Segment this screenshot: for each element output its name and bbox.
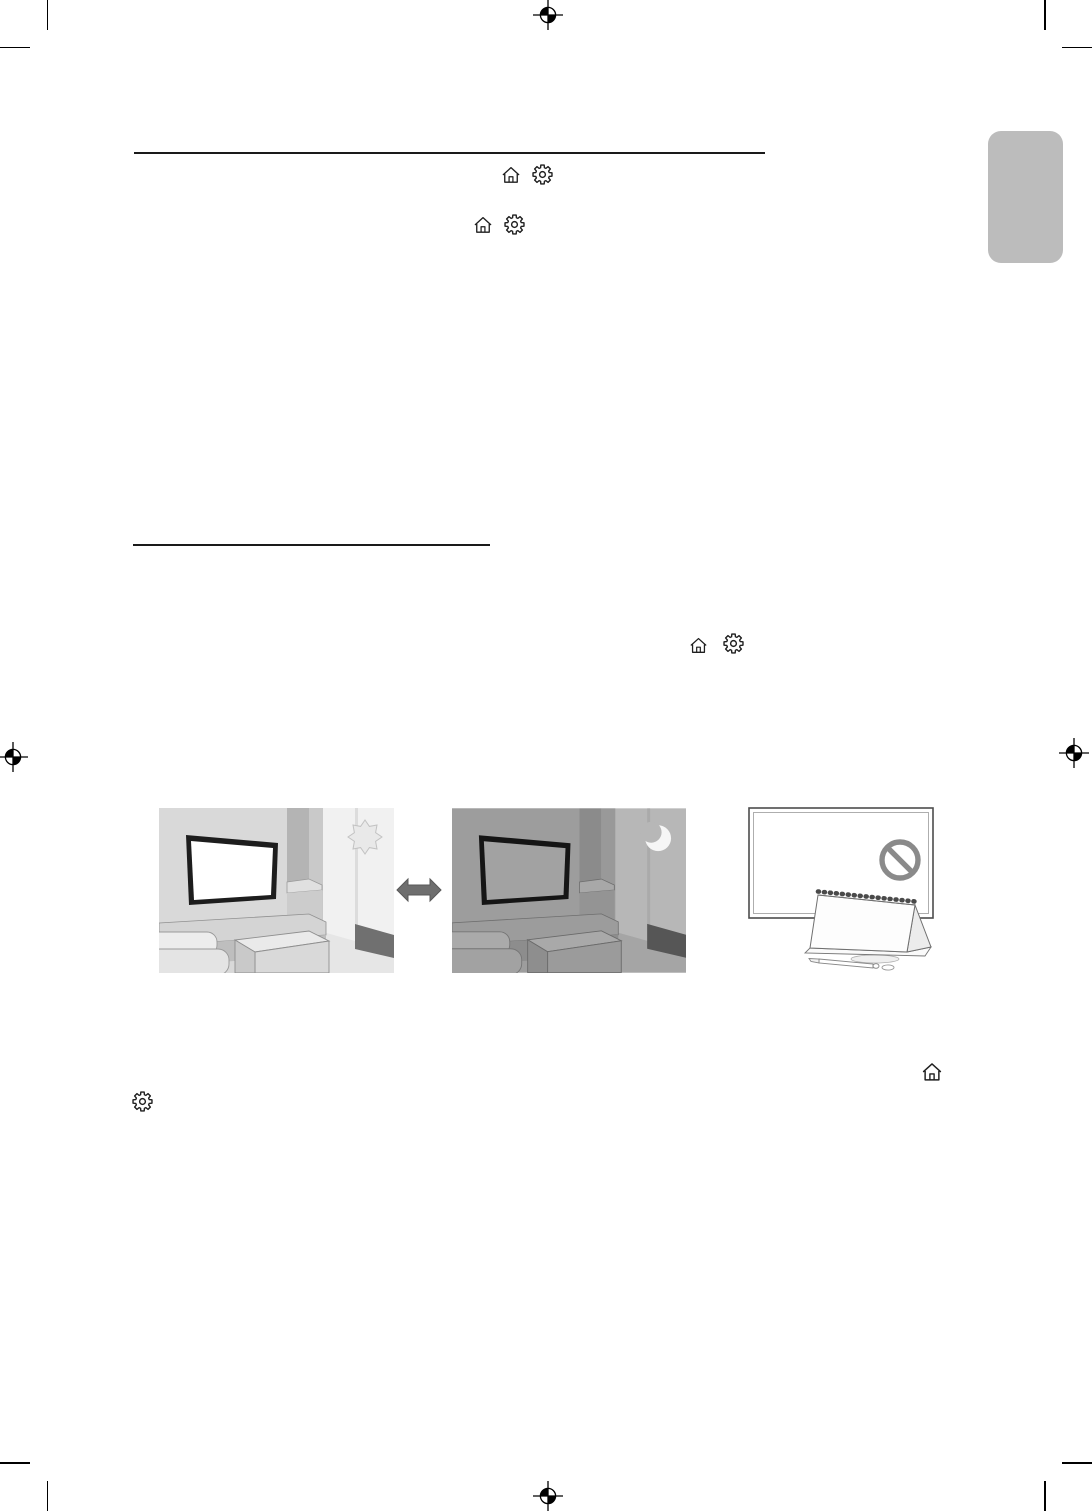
section-rule-middle [133,544,490,546]
figure-night-scene [452,808,686,973]
crop-mark-bottom-left-horizontal [0,1462,30,1464]
crop-mark-bottom-left-vertical [47,1481,49,1511]
crop-mark-bottom-right-vertical [1044,1481,1046,1511]
home-icon [921,1061,943,1083]
registration-mark-left-middle [0,742,28,772]
registration-mark-top-center [533,0,563,30]
home-icon [689,636,708,655]
figure-day-scene [159,808,394,973]
tv-stand-base [851,955,899,963]
registration-mark-right-middle [1059,738,1089,768]
tv-screen-bright [191,841,273,900]
tv-screen-dim [484,841,566,900]
manual-page [0,0,1092,1511]
registration-mark-bottom-center [533,1481,563,1511]
settings-gear-icon [132,1091,153,1112]
desk-calendar [805,892,931,957]
crop-mark-top-left-horizontal [0,47,30,49]
home-icon [473,215,493,235]
double-headed-arrow-icon [397,879,441,901]
figure-swap-arrow [396,874,442,906]
section-index-tab [988,131,1063,263]
settings-gear-icon [504,214,525,235]
crop-mark-top-left-vertical [47,0,49,30]
crop-mark-top-right-horizontal [1062,47,1092,49]
crop-mark-top-right-vertical [1044,0,1046,30]
sun-icon [348,820,382,854]
crop-mark-bottom-right-horizontal [1062,1462,1092,1464]
home-icon [501,165,521,185]
settings-gear-icon [723,633,744,654]
figure-no-obstruction [745,800,945,980]
settings-gear-icon [532,164,553,185]
section-rule-top [134,152,765,154]
